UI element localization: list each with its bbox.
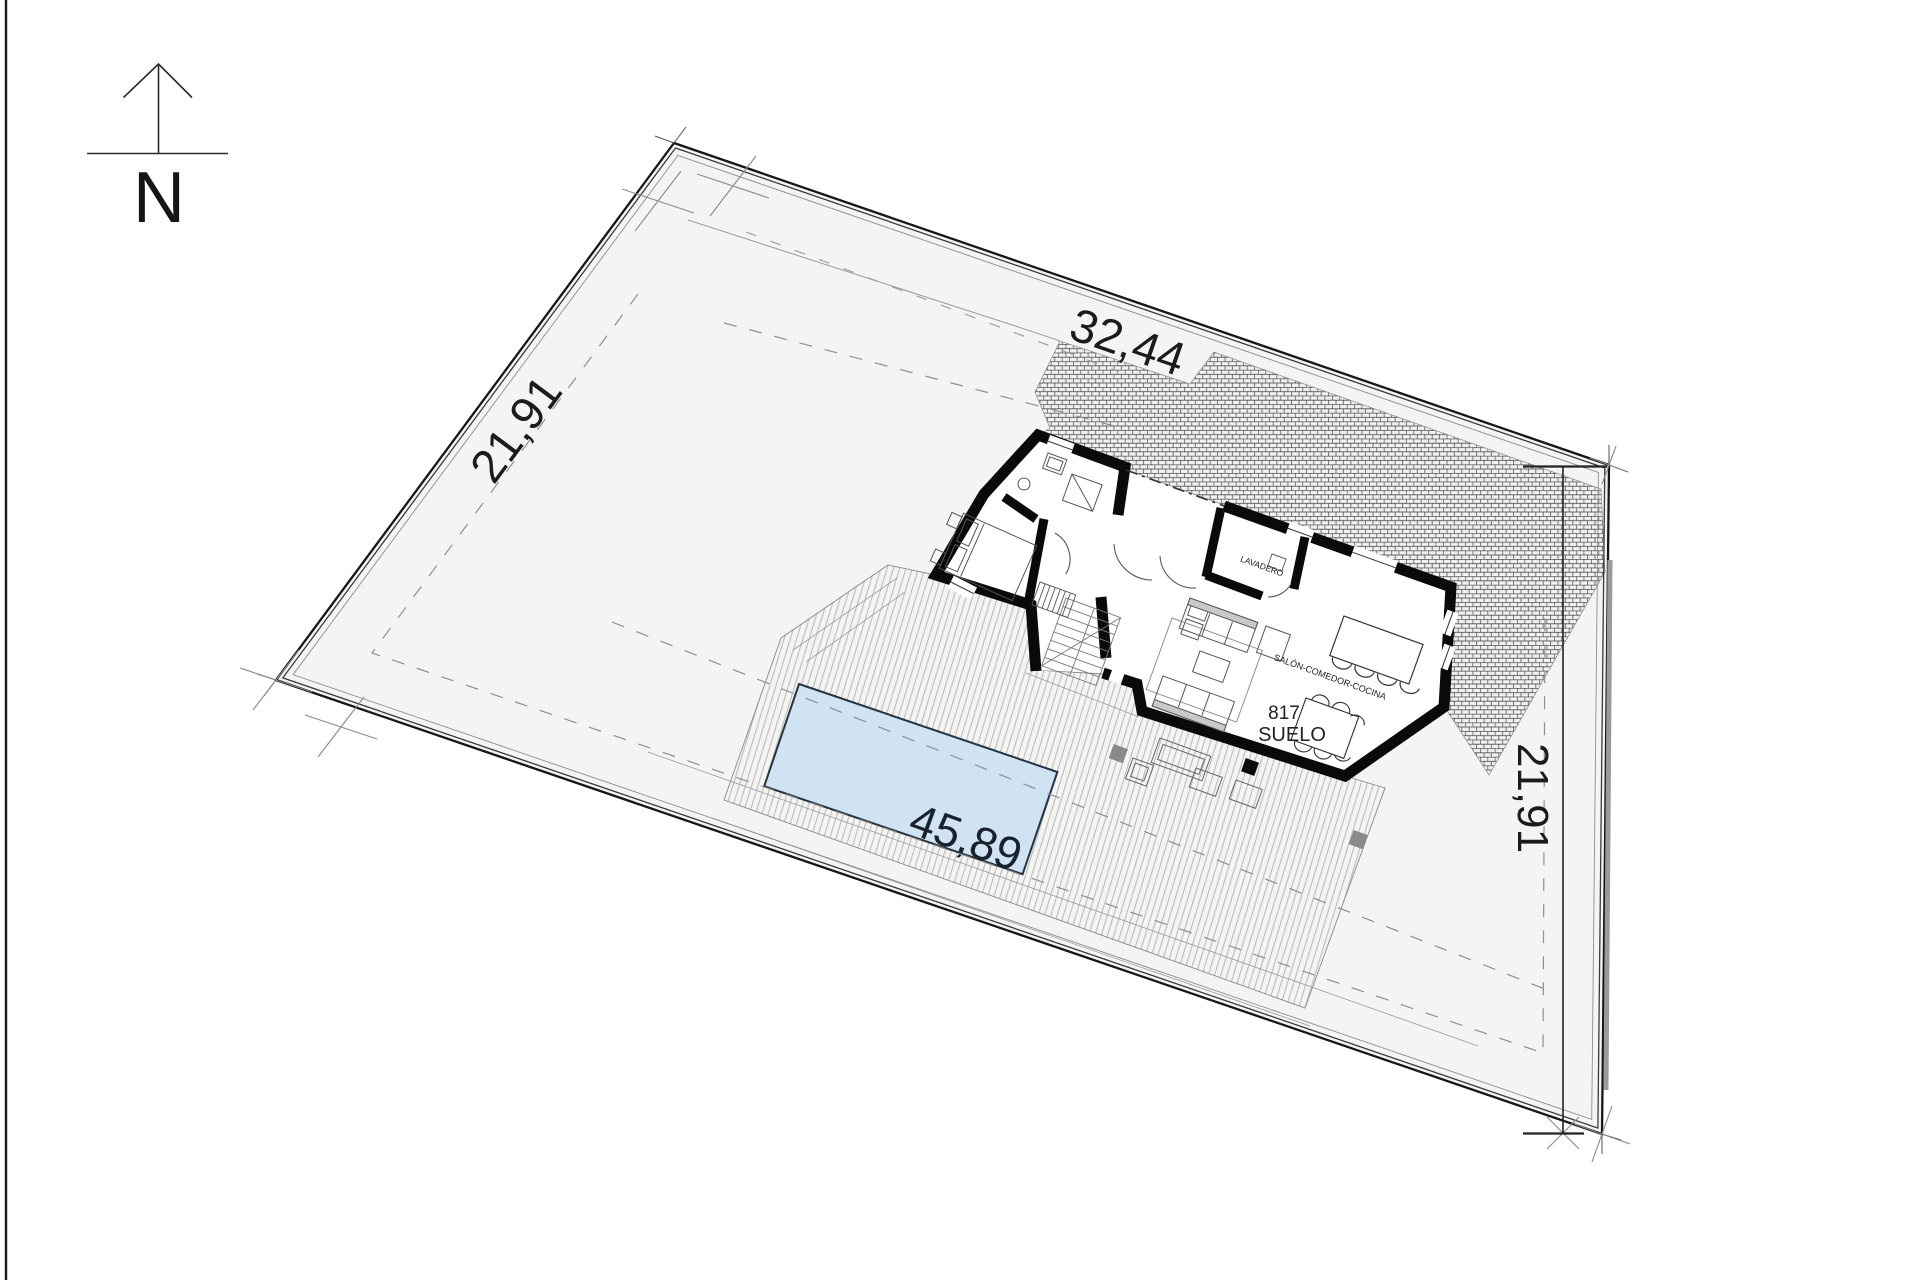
svg-text:817: 817 bbox=[1268, 703, 1300, 724]
svg-text:N: N bbox=[133, 158, 185, 238]
svg-text:21,91: 21,91 bbox=[1508, 743, 1557, 853]
svg-text:SUELO: SUELO bbox=[1258, 724, 1326, 746]
